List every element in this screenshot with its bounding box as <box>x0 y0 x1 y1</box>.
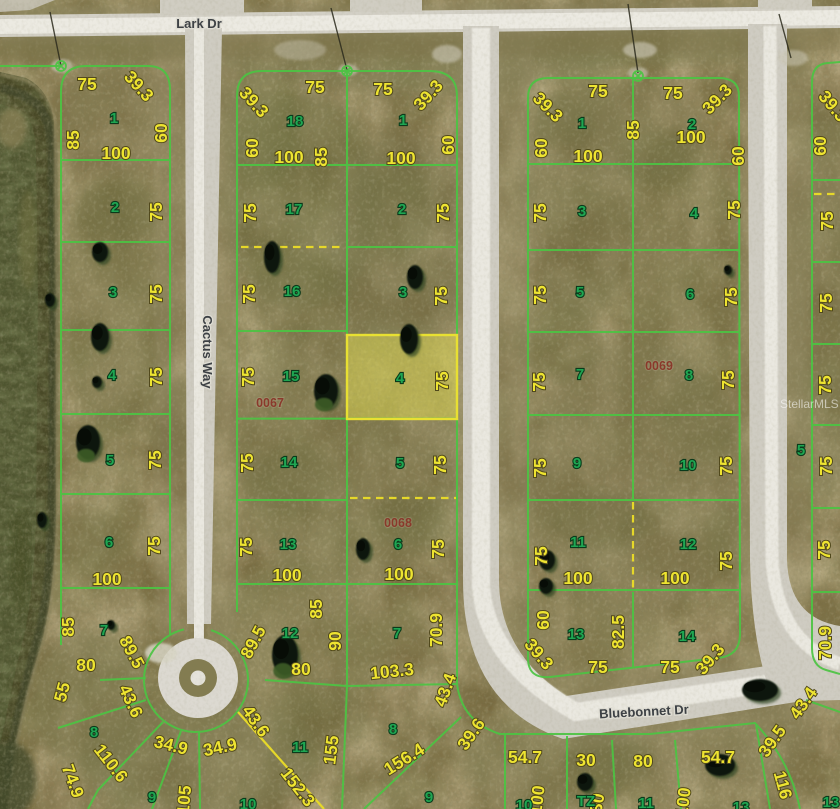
svg-text:60: 60 <box>531 138 551 158</box>
svg-text:4: 4 <box>396 370 405 387</box>
svg-text:75: 75 <box>718 370 738 390</box>
svg-text:100: 100 <box>660 568 689 588</box>
svg-text:85: 85 <box>623 120 643 140</box>
svg-text:75: 75 <box>146 284 166 304</box>
svg-text:75: 75 <box>660 657 680 677</box>
svg-text:90: 90 <box>325 631 345 651</box>
svg-text:2: 2 <box>398 201 406 218</box>
svg-text:4: 4 <box>690 205 699 222</box>
svg-text:1: 1 <box>110 110 118 127</box>
svg-text:12: 12 <box>680 536 697 553</box>
svg-text:75: 75 <box>815 375 835 395</box>
svg-text:70.9: 70.9 <box>815 626 835 660</box>
svg-text:1: 1 <box>399 112 407 129</box>
svg-text:75: 75 <box>531 546 551 566</box>
svg-text:100: 100 <box>92 569 121 589</box>
svg-text:75: 75 <box>144 536 164 556</box>
svg-text:13: 13 <box>280 536 297 553</box>
svg-text:100: 100 <box>563 568 592 588</box>
svg-text:85: 85 <box>311 147 331 167</box>
svg-text:75: 75 <box>588 657 608 677</box>
svg-text:75: 75 <box>721 287 741 307</box>
svg-text:9: 9 <box>148 789 156 806</box>
svg-text:75: 75 <box>145 450 165 470</box>
svg-text:8: 8 <box>389 721 397 738</box>
svg-text:75: 75 <box>816 456 836 476</box>
svg-text:60: 60 <box>728 146 748 166</box>
svg-text:70.9: 70.9 <box>426 613 446 647</box>
svg-text:Cactus Way: Cactus Way <box>200 315 215 389</box>
svg-text:75: 75 <box>817 211 837 231</box>
svg-text:7: 7 <box>393 625 401 642</box>
svg-text:18: 18 <box>287 113 304 130</box>
svg-text:75: 75 <box>239 284 259 304</box>
svg-text:11: 11 <box>292 739 308 756</box>
svg-text:3: 3 <box>399 284 407 301</box>
svg-text:75: 75 <box>238 367 258 387</box>
svg-text:30: 30 <box>576 750 596 770</box>
svg-text:54.7: 54.7 <box>508 747 542 767</box>
svg-text:5: 5 <box>106 452 114 469</box>
svg-text:75: 75 <box>237 453 257 473</box>
svg-text:85: 85 <box>63 130 83 150</box>
svg-text:75: 75 <box>529 372 549 392</box>
svg-text:1: 1 <box>578 115 586 132</box>
svg-text:11: 11 <box>638 795 654 809</box>
svg-text:10: 10 <box>680 457 697 474</box>
svg-text:155: 155 <box>319 734 342 766</box>
svg-text:17: 17 <box>286 201 303 218</box>
svg-text:75: 75 <box>724 200 744 220</box>
svg-text:100: 100 <box>272 565 301 585</box>
svg-text:11: 11 <box>570 534 586 551</box>
svg-text:75: 75 <box>716 456 736 476</box>
svg-text:3: 3 <box>578 203 586 220</box>
svg-text:75: 75 <box>236 537 256 557</box>
svg-text:StellarMLS: StellarMLS <box>780 397 839 411</box>
svg-text:100: 100 <box>386 148 415 168</box>
svg-text:85: 85 <box>306 599 326 619</box>
svg-text:8: 8 <box>685 367 693 384</box>
svg-text:75: 75 <box>373 79 393 99</box>
svg-text:60: 60 <box>810 136 830 156</box>
svg-text:105: 105 <box>173 784 195 809</box>
svg-text:5: 5 <box>576 284 584 301</box>
svg-text:100: 100 <box>671 786 694 809</box>
svg-text:80: 80 <box>633 751 653 771</box>
svg-text:75: 75 <box>430 455 450 475</box>
svg-text:100: 100 <box>384 564 413 584</box>
svg-text:60: 60 <box>438 135 458 155</box>
svg-text:13: 13 <box>733 799 750 809</box>
svg-text:75: 75 <box>146 202 166 222</box>
svg-text:75: 75 <box>588 81 608 101</box>
svg-text:75: 75 <box>428 539 448 559</box>
svg-text:9: 9 <box>573 455 581 472</box>
svg-text:60: 60 <box>533 610 553 630</box>
svg-text:14: 14 <box>679 628 696 645</box>
svg-text:82.5: 82.5 <box>608 615 628 649</box>
svg-text:54.7: 54.7 <box>701 747 735 767</box>
svg-text:100: 100 <box>101 143 130 163</box>
svg-text:6: 6 <box>105 534 113 551</box>
svg-text:75: 75 <box>816 293 836 313</box>
svg-text:60: 60 <box>242 138 262 158</box>
svg-text:75: 75 <box>530 285 550 305</box>
svg-text:80: 80 <box>291 659 311 679</box>
svg-text:75: 75 <box>77 74 97 94</box>
svg-text:0069: 0069 <box>645 359 673 373</box>
svg-text:75: 75 <box>530 458 550 478</box>
svg-text:8: 8 <box>90 724 98 741</box>
svg-text:6: 6 <box>686 286 694 303</box>
svg-text:75: 75 <box>433 203 453 223</box>
svg-text:0068: 0068 <box>384 516 412 530</box>
svg-text:75: 75 <box>432 371 452 391</box>
svg-text:75: 75 <box>663 83 683 103</box>
svg-text:16: 16 <box>284 283 301 300</box>
svg-text:5: 5 <box>797 442 805 459</box>
svg-text:13: 13 <box>823 794 840 809</box>
svg-text:75: 75 <box>146 367 166 387</box>
svg-text:5: 5 <box>396 455 404 472</box>
svg-text:75: 75 <box>530 203 550 223</box>
svg-text:14: 14 <box>281 454 298 471</box>
svg-text:85: 85 <box>58 617 78 637</box>
svg-text:3: 3 <box>109 284 117 301</box>
svg-text:80: 80 <box>76 655 96 675</box>
svg-text:4: 4 <box>108 367 117 384</box>
svg-text:75: 75 <box>716 551 736 571</box>
svg-text:7: 7 <box>576 366 584 383</box>
svg-text:12: 12 <box>282 625 299 642</box>
svg-text:75: 75 <box>305 77 325 97</box>
svg-text:13: 13 <box>568 626 585 643</box>
svg-text:6: 6 <box>394 536 402 553</box>
svg-text:Lark Dr: Lark Dr <box>176 16 222 31</box>
svg-text:75: 75 <box>240 203 260 223</box>
svg-text:2: 2 <box>688 116 696 133</box>
svg-text:0067: 0067 <box>256 396 284 410</box>
svg-text:15: 15 <box>283 368 300 385</box>
svg-text:10: 10 <box>240 796 257 809</box>
svg-text:10: 10 <box>516 797 533 809</box>
svg-text:2: 2 <box>111 199 119 216</box>
svg-text:9: 9 <box>425 789 433 806</box>
svg-text:75: 75 <box>814 540 834 560</box>
svg-text:7: 7 <box>100 622 108 639</box>
svg-text:100: 100 <box>573 146 602 166</box>
svg-text:60: 60 <box>151 123 171 143</box>
svg-text:TZ: TZ <box>577 793 595 809</box>
svg-text:75: 75 <box>431 286 451 306</box>
svg-text:100: 100 <box>274 147 303 167</box>
